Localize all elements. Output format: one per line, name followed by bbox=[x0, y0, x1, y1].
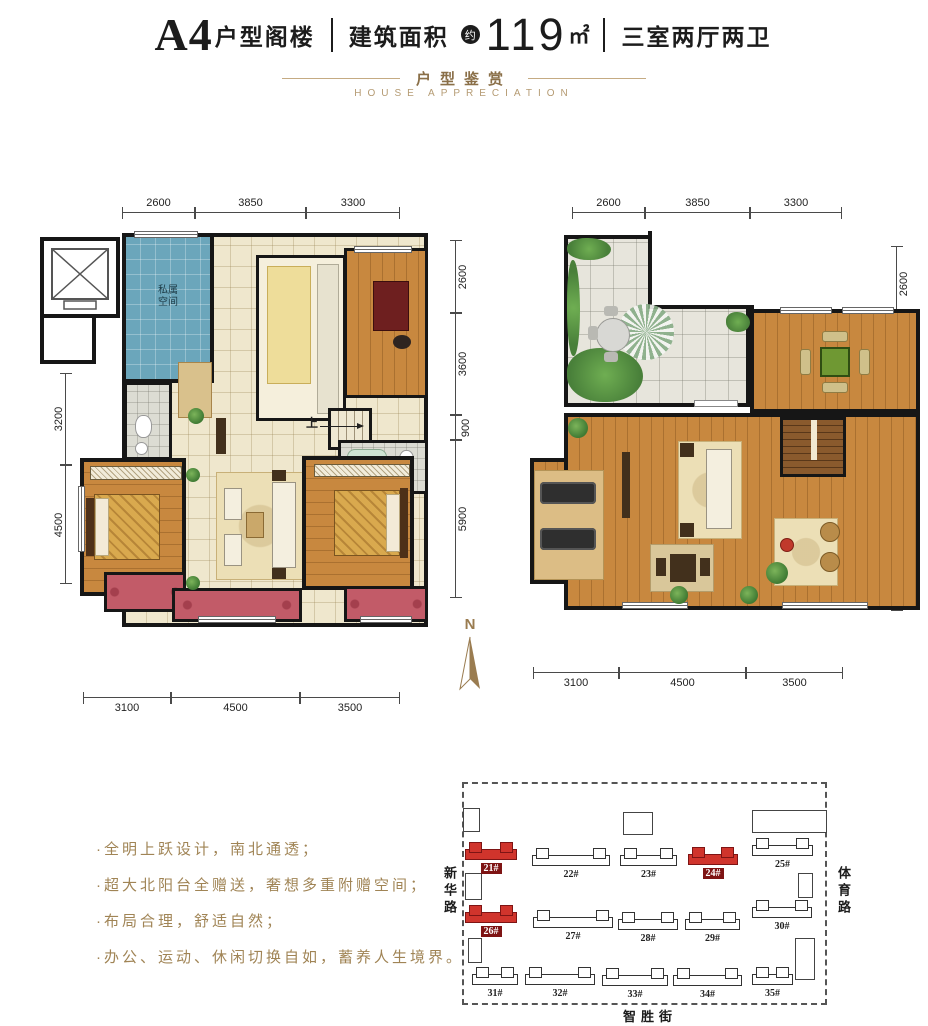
dim-segment: 3100 bbox=[83, 697, 171, 698]
bed-pillows bbox=[386, 494, 400, 552]
stairs-up-label: 上 bbox=[306, 414, 318, 431]
building-31: 31# bbox=[472, 967, 518, 999]
room-kitchen bbox=[256, 255, 346, 421]
building-shape bbox=[618, 919, 678, 930]
building-label: 34# bbox=[673, 989, 742, 1000]
dim-label: 900 bbox=[460, 418, 472, 436]
rattan-chair bbox=[820, 552, 840, 572]
tv-console bbox=[622, 452, 630, 518]
elevator-icon bbox=[44, 241, 116, 314]
side-table bbox=[680, 523, 694, 537]
window bbox=[842, 307, 894, 314]
wardrobe bbox=[90, 466, 182, 480]
dim-label: 2600 bbox=[457, 264, 469, 288]
kitchen-island bbox=[267, 266, 311, 384]
dim-label: 3300 bbox=[750, 197, 842, 209]
feature-list: ·全明上跃设计，南北通透； ·超大北阳台全赠送，奢想多重附赠空间； ·布局合理，… bbox=[96, 832, 464, 976]
terrace-door bbox=[694, 400, 738, 407]
side-table bbox=[272, 470, 286, 481]
bed-headboard bbox=[86, 498, 94, 556]
dim-segment: 3850 bbox=[195, 212, 306, 213]
tea-table bbox=[670, 554, 696, 582]
building-id: 27# bbox=[566, 931, 581, 942]
study-desk bbox=[373, 281, 409, 331]
feature-item: ·全明上跃设计，南北通透； bbox=[96, 832, 464, 868]
floor-plan-lower: 2600 3850 3300 3200 4500 2600 3600 900 5… bbox=[38, 186, 468, 710]
building-shape bbox=[532, 855, 610, 866]
unit-code: A4 bbox=[155, 8, 213, 61]
coffee-table bbox=[246, 512, 264, 538]
tea-chair bbox=[656, 558, 666, 576]
building-id: 26# bbox=[481, 926, 502, 937]
building-id: 28# bbox=[641, 933, 656, 944]
elevator-lobby bbox=[40, 314, 96, 364]
garden-patch bbox=[567, 260, 580, 356]
subtitle-cn: 户型鉴赏 bbox=[416, 68, 512, 89]
building-label: 32# bbox=[525, 988, 595, 999]
dim-segment: 3850 bbox=[645, 212, 750, 213]
plant bbox=[568, 418, 588, 438]
building-label: 30# bbox=[752, 921, 812, 932]
building-28: 28# bbox=[618, 912, 678, 944]
building-shape bbox=[525, 974, 595, 985]
dim-label: 5900 bbox=[457, 507, 469, 531]
round-table bbox=[780, 538, 794, 552]
building-shape bbox=[465, 849, 517, 860]
building-shape bbox=[465, 912, 517, 923]
building-22: 22# bbox=[532, 848, 610, 880]
plant bbox=[740, 586, 758, 604]
wardrobe bbox=[314, 464, 410, 477]
armchair bbox=[224, 534, 242, 566]
room-attic-hall bbox=[564, 413, 920, 610]
study-chair bbox=[393, 335, 411, 349]
plant bbox=[766, 562, 788, 584]
dining-chair bbox=[800, 349, 811, 375]
dim-segment: 5900 bbox=[455, 440, 456, 598]
window bbox=[354, 246, 412, 253]
garden-patch bbox=[726, 312, 750, 332]
dining-table bbox=[820, 347, 850, 377]
building-id: 35# bbox=[765, 988, 780, 999]
sofa bbox=[706, 449, 732, 529]
building-shape bbox=[688, 854, 738, 865]
compass: N bbox=[448, 616, 492, 700]
building-34: 34# bbox=[673, 968, 742, 1000]
subtitle-line-right bbox=[528, 78, 646, 79]
dim-label: 2600 bbox=[898, 272, 910, 296]
building-label: 29# bbox=[685, 933, 740, 944]
building-id: 30# bbox=[775, 921, 790, 932]
road-label-bottom: 智胜街 bbox=[590, 1006, 710, 1025]
dim-label: 3500 bbox=[746, 677, 843, 689]
stairs-up-arrow bbox=[320, 426, 362, 427]
building-id: 21# bbox=[481, 863, 502, 874]
building-21: 21# bbox=[465, 842, 517, 874]
elevator-shaft bbox=[40, 237, 120, 318]
plant bbox=[188, 408, 204, 424]
aux-building bbox=[465, 873, 482, 900]
building-id: 34# bbox=[700, 989, 715, 1000]
dim-segment: 900 bbox=[455, 415, 456, 440]
feature-item: ·布局合理，舒适自然； bbox=[96, 904, 464, 940]
road-label-left: 新华路 bbox=[440, 866, 459, 917]
building-id: 31# bbox=[488, 988, 503, 999]
building-id: 23# bbox=[641, 869, 656, 880]
window bbox=[782, 602, 868, 609]
dim-label: 2600 bbox=[122, 197, 195, 209]
building-shape bbox=[685, 919, 740, 930]
building-shape bbox=[752, 845, 813, 856]
page-title: A4 户型阁楼 建筑面积 约 119 ㎡ 三室两厅两卫 bbox=[0, 8, 928, 61]
building-30: 30# bbox=[752, 900, 812, 932]
stairs-divider bbox=[811, 420, 817, 460]
dim-label: 3500 bbox=[300, 702, 400, 714]
building-label: 23# bbox=[620, 869, 677, 880]
dim-segment: 3300 bbox=[306, 212, 400, 213]
dim-label: 3100 bbox=[533, 677, 619, 689]
title-divider bbox=[603, 18, 605, 52]
floor-plan-attic: 2600 3850 3300 2600 10400 3100 4500 3500 bbox=[530, 186, 928, 710]
building-id: 22# bbox=[564, 869, 579, 880]
window bbox=[360, 616, 412, 623]
floorplan-page: A4 户型阁楼 建筑面积 约 119 ㎡ 三室两厅两卫 户型鉴赏 HOUSE A… bbox=[0, 0, 928, 1026]
building-id: 29# bbox=[705, 933, 720, 944]
aux-building bbox=[752, 810, 827, 833]
room-bathroom-1 bbox=[124, 382, 172, 460]
aux-building bbox=[795, 938, 815, 980]
building-label: 31# bbox=[472, 988, 518, 999]
armchair bbox=[224, 488, 242, 520]
patio-chair bbox=[604, 352, 618, 362]
dim-segment: 2600 bbox=[455, 240, 456, 313]
building-shape bbox=[533, 917, 613, 928]
treadmill bbox=[540, 528, 596, 550]
dim-segment: 3300 bbox=[750, 212, 842, 213]
site-map: 21# 22# 23# 24# 25# 26# 27# 28# bbox=[440, 772, 920, 1026]
bed-headboard bbox=[400, 488, 408, 558]
patio-chair bbox=[588, 326, 598, 340]
aux-building bbox=[468, 938, 482, 963]
side-table bbox=[272, 568, 286, 579]
compass-needle-icon bbox=[452, 633, 488, 695]
plant bbox=[186, 576, 200, 590]
side-table bbox=[680, 443, 694, 457]
building-shape bbox=[602, 975, 668, 986]
dining-chair bbox=[822, 382, 848, 393]
building-id: 24# bbox=[703, 868, 724, 879]
building-label: 28# bbox=[618, 933, 678, 944]
sink bbox=[135, 442, 148, 455]
aux-building bbox=[463, 808, 480, 832]
building-35: 35# bbox=[752, 967, 793, 999]
feature-item: ·办公、运动、休闲切换自如，蓄养人生境界。 bbox=[96, 940, 464, 976]
dim-label: 3600 bbox=[457, 352, 469, 376]
dim-segment: 3200 bbox=[65, 373, 66, 465]
building-label: 33# bbox=[602, 989, 668, 1000]
building-24: 24# bbox=[688, 847, 738, 879]
plant bbox=[670, 586, 688, 604]
feature-item: ·超大北阳台全赠送，奢想多重附赠空间； bbox=[96, 868, 464, 904]
toilet bbox=[135, 415, 152, 438]
building-shape bbox=[752, 974, 793, 985]
bed-pillows bbox=[95, 498, 109, 556]
road-label-right: 体育路 bbox=[834, 866, 853, 917]
room-private-space: 私属空间 bbox=[122, 233, 214, 383]
building-id: 32# bbox=[553, 988, 568, 999]
subtitle-line-left bbox=[282, 78, 400, 79]
area-value: 119 bbox=[486, 9, 567, 61]
dim-label: 3850 bbox=[195, 197, 306, 209]
dim-label: 2600 bbox=[572, 197, 645, 209]
building-label: 22# bbox=[532, 869, 610, 880]
building-32: 32# bbox=[525, 967, 595, 999]
building-33: 33# bbox=[602, 968, 668, 1000]
approx-badge: 约 bbox=[461, 25, 480, 44]
rattan-chair bbox=[820, 522, 840, 542]
dim-segment: 2600 bbox=[572, 212, 645, 213]
dining-chair bbox=[859, 349, 870, 375]
window bbox=[134, 231, 198, 238]
room-bedroom-right bbox=[302, 456, 414, 590]
dim-segment: 4500 bbox=[171, 697, 300, 698]
dim-segment: 3100 bbox=[533, 672, 619, 673]
stairs-attic bbox=[780, 417, 846, 477]
building-label: 21# bbox=[465, 863, 517, 874]
compass-north-label: N bbox=[448, 616, 492, 633]
building-label: 27# bbox=[533, 931, 613, 942]
console-table bbox=[216, 418, 226, 454]
aux-building bbox=[798, 873, 813, 898]
building-29: 29# bbox=[685, 912, 740, 944]
dim-segment: 3500 bbox=[300, 697, 400, 698]
building-27: 27# bbox=[533, 910, 613, 942]
building-id: 25# bbox=[775, 859, 790, 870]
dim-label: 4500 bbox=[619, 677, 746, 689]
aux-building bbox=[623, 812, 653, 835]
building-26: 26# bbox=[465, 905, 517, 937]
window bbox=[198, 616, 276, 623]
subtitle-en: HOUSE APPRECIATION bbox=[0, 88, 928, 99]
garden-patch bbox=[567, 238, 611, 260]
title-divider bbox=[331, 18, 333, 52]
dim-segment: 2600 bbox=[122, 212, 195, 213]
room-private-label: 私属空间 bbox=[155, 285, 181, 309]
dim-label: 4500 bbox=[53, 512, 65, 536]
dining-chair bbox=[822, 331, 848, 342]
building-23: 23# bbox=[620, 848, 677, 880]
dim-label: 3300 bbox=[306, 197, 400, 209]
plant bbox=[186, 468, 200, 482]
dim-segment: 3500 bbox=[746, 672, 843, 673]
layout-desc: 三室两厅两卫 bbox=[621, 18, 771, 52]
building-label: 26# bbox=[465, 926, 517, 937]
treadmill bbox=[540, 482, 596, 504]
kitchen-counter bbox=[317, 264, 339, 414]
patio-table bbox=[596, 318, 630, 352]
building-id: 33# bbox=[628, 989, 643, 1000]
building-25: 25# bbox=[752, 838, 813, 870]
sofa bbox=[272, 482, 296, 568]
tea-chair bbox=[700, 558, 710, 576]
building-label: 24# bbox=[688, 868, 738, 879]
patio-chair bbox=[604, 306, 618, 316]
building-shape bbox=[472, 974, 518, 985]
building-label: 35# bbox=[752, 988, 793, 999]
dim-label: 3100 bbox=[83, 702, 171, 714]
window bbox=[780, 307, 832, 314]
dim-segment: 4500 bbox=[619, 672, 746, 673]
building-shape bbox=[620, 855, 677, 866]
subtitle: 户型鉴赏 bbox=[0, 68, 928, 89]
building-shape bbox=[673, 975, 742, 986]
building-label: 25# bbox=[752, 859, 813, 870]
unit-type: 户型阁楼 bbox=[215, 18, 315, 52]
dim-label: 3850 bbox=[645, 197, 750, 209]
dim-segment: 3600 bbox=[455, 313, 456, 415]
building-shape bbox=[752, 907, 812, 918]
room-study bbox=[344, 248, 428, 398]
window bbox=[78, 486, 85, 552]
room-attic-dining bbox=[750, 309, 920, 413]
terrace-notch bbox=[648, 231, 754, 309]
dim-segment: 4500 bbox=[65, 465, 66, 584]
dim-label: 3200 bbox=[53, 407, 65, 431]
area-unit: ㎡ bbox=[568, 20, 589, 50]
area-label: 建筑面积 bbox=[349, 18, 449, 52]
dim-label: 4500 bbox=[171, 702, 300, 714]
